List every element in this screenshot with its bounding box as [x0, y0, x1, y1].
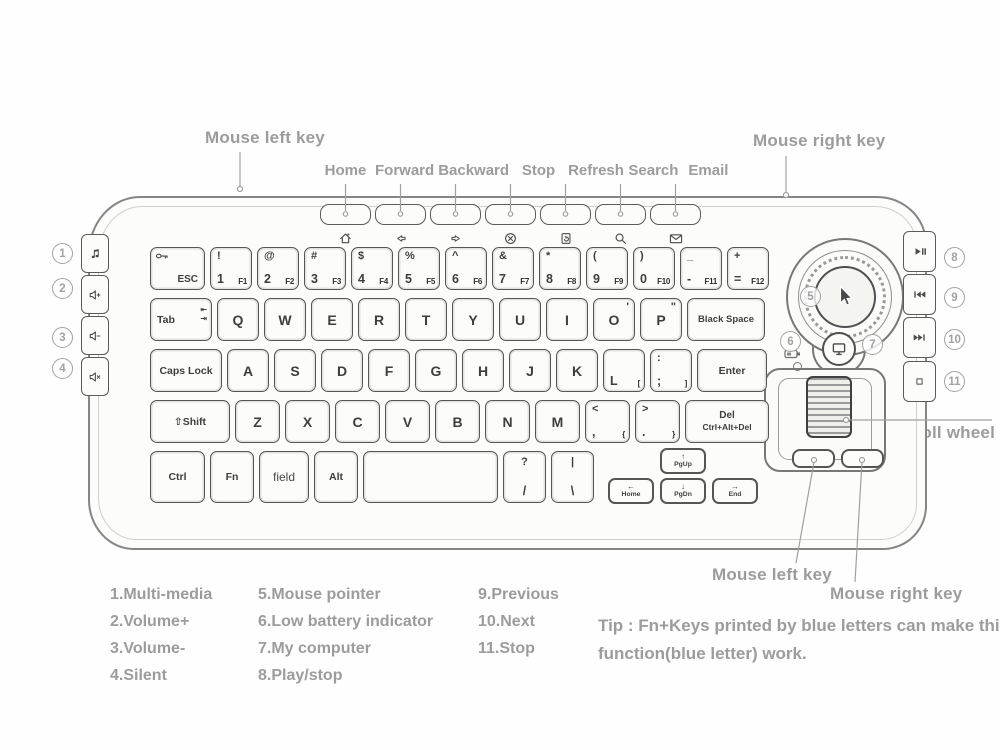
arrow-right-icon: →: [731, 483, 739, 491]
callout-number-5: 5: [800, 286, 821, 307]
key-equals[interactable]: +=F12: [727, 247, 769, 290]
media-key-label-backward: Backward: [438, 162, 509, 179]
key-esc[interactable]: ESC: [150, 247, 205, 290]
key-d[interactable]: D: [321, 349, 363, 392]
key-a[interactable]: A: [227, 349, 269, 392]
key-del[interactable]: DelCtrl+Alt+Del: [685, 400, 769, 443]
key-pgup[interactable]: ↑ PgUp: [660, 448, 706, 474]
media-key-label-search: Search: [628, 162, 679, 179]
key-t[interactable]: T: [405, 298, 447, 341]
key-9[interactable]: (9F9: [586, 247, 628, 290]
key-shift[interactable]: ⇧Shift: [150, 400, 230, 443]
key-home[interactable]: ← Home: [608, 478, 654, 504]
key-f[interactable]: F: [368, 349, 410, 392]
key-enter[interactable]: Enter: [697, 349, 767, 392]
key-home-label: Home: [622, 492, 641, 499]
key-black-space[interactable]: Black Space: [687, 298, 765, 341]
key-ctrl[interactable]: Ctrl: [150, 451, 205, 503]
stop-circle-icon: [503, 229, 518, 247]
side-button-volume-up[interactable]: [81, 275, 109, 314]
media-key-search[interactable]: [595, 204, 646, 225]
key-z[interactable]: Z: [235, 400, 280, 443]
key-u[interactable]: U: [499, 298, 541, 341]
key-w[interactable]: W: [264, 298, 306, 341]
email-icon: [668, 229, 684, 247]
arrow-right-icon: [448, 229, 464, 247]
callout-mouse-right-key-bottom: Mouse right key: [830, 584, 962, 604]
media-cell-email: [650, 204, 701, 247]
arrow-nav-cluster: ↑ PgUp ← Home ↓ PgDn → End: [608, 448, 760, 504]
key-end-label: End: [729, 492, 742, 499]
callout-number-6: 6: [780, 331, 801, 352]
key-h[interactable]: H: [462, 349, 504, 392]
key-s[interactable]: S: [274, 349, 316, 392]
side-button-previous-track[interactable]: [903, 274, 936, 315]
callout-mouse-right-key-top: Mouse right key: [753, 131, 885, 151]
next-track-icon: [911, 331, 928, 344]
key-y[interactable]: Y: [452, 298, 494, 341]
legend-item: 1.Multi-media: [110, 581, 212, 608]
key-5[interactable]: %5F5: [398, 247, 440, 290]
key-x[interactable]: X: [285, 400, 330, 443]
media-cell-home: [320, 204, 371, 247]
trackball[interactable]: [814, 266, 876, 328]
media-key-label-refresh: Refresh: [568, 162, 624, 179]
key-semicolon[interactable]: :;]: [650, 349, 692, 392]
key-b[interactable]: B: [435, 400, 480, 443]
legend-item: 9.Previous: [478, 581, 559, 608]
legend-item: 11.Stop: [478, 635, 559, 662]
key-q[interactable]: Q: [217, 298, 259, 341]
play-pause-icon: [912, 245, 928, 258]
legend-column-1: 1.Multi-media2.Volume+3.Volume-4.Silent: [110, 581, 212, 689]
key-fn[interactable]: Fn: [210, 451, 254, 503]
key-n[interactable]: N: [485, 400, 530, 443]
arrow-left-icon: [393, 229, 409, 247]
key-minus[interactable]: _-F11: [680, 247, 722, 290]
media-key-refresh[interactable]: [540, 204, 591, 225]
media-key-strip: [320, 204, 701, 247]
side-button-stop-square[interactable]: [903, 361, 936, 402]
side-button-mute[interactable]: [81, 357, 109, 396]
media-cell-forward: [375, 204, 426, 247]
key-v[interactable]: V: [385, 400, 430, 443]
key-caps-lock[interactable]: Caps Lock: [150, 349, 222, 392]
media-key-email[interactable]: [650, 204, 701, 225]
battery-led-light: [793, 362, 802, 371]
key-row-1: ESC!1F1@2F2#3F3$4F4%5F5^6F6&7F7*8F8(9F9)…: [150, 247, 769, 290]
media-key-label-stop: Stop: [513, 162, 564, 179]
media-cell-backward: [430, 204, 481, 247]
callout-number-11: 11: [944, 371, 965, 392]
home-icon: [338, 229, 353, 247]
key-field[interactable]: field: [259, 451, 309, 503]
my-computer-button[interactable]: [822, 332, 856, 366]
media-key-home[interactable]: [320, 204, 371, 225]
volume-down-icon: [87, 329, 103, 343]
key-slash[interactable]: ?/: [503, 451, 546, 503]
key-e[interactable]: E: [311, 298, 353, 341]
mouse-pointer-icon: [834, 285, 856, 309]
media-key-label-forward: Forward: [375, 162, 434, 179]
key-pgdn-label: PgDn: [674, 492, 692, 499]
mute-icon: [87, 370, 103, 384]
callout-number-9: 9: [944, 287, 965, 308]
key-c[interactable]: C: [335, 400, 380, 443]
callout-number-8: 8: [944, 247, 965, 268]
key-0[interactable]: )0F10: [633, 247, 675, 290]
previous-track-icon: [911, 288, 928, 301]
callout-number-4: 4: [52, 358, 73, 379]
key-3[interactable]: #3F3: [304, 247, 346, 290]
key-del-label: DelCtrl+Alt+Del: [686, 401, 768, 442]
legend-column-2: 5.Mouse pointer6.Low battery indicator7.…: [258, 581, 433, 689]
media-key-labels: HomeForwardBackwardStopRefreshSearchEmai…: [320, 162, 734, 179]
callout-number-7: 7: [862, 334, 883, 355]
key-space[interactable]: [363, 451, 498, 503]
key-pgdn[interactable]: ↓ PgDn: [660, 478, 706, 504]
callout-number-1: 1: [52, 243, 73, 264]
callout-number-2: 2: [52, 278, 73, 299]
keyboard-manual-diagram: Mouse left key Mouse right key HomeForwa…: [0, 0, 1000, 750]
key-m[interactable]: M: [535, 400, 580, 443]
legend-column-3: 9.Previous10.Next11.Stop: [478, 581, 559, 662]
legend-item: 6.Low battery indicator: [258, 608, 433, 635]
legend-item: 3.Volume-: [110, 635, 212, 662]
key-backslash[interactable]: |\: [551, 451, 594, 503]
key-comma[interactable]: <,{: [585, 400, 630, 443]
mouse-left-button[interactable]: [792, 449, 835, 468]
media-key-forward[interactable]: [375, 204, 426, 225]
key-period[interactable]: >.}: [635, 400, 680, 443]
key-alt[interactable]: Alt: [314, 451, 358, 503]
key-l[interactable]: L[: [603, 349, 645, 392]
arrow-left-icon: ←: [627, 483, 635, 491]
key-g[interactable]: G: [415, 349, 457, 392]
media-cell-refresh: [540, 204, 591, 247]
refresh-page-icon: [559, 229, 573, 247]
legend-item: 4.Silent: [110, 662, 212, 689]
legend-item: 5.Mouse pointer: [258, 581, 433, 608]
arrow-up-icon: ↑: [681, 453, 685, 461]
key-6[interactable]: ^6F6: [445, 247, 487, 290]
key-4[interactable]: $4F4: [351, 247, 393, 290]
mouse-right-button[interactable]: [841, 449, 884, 468]
stop-square-icon: [913, 375, 926, 388]
media-cell-stop: [485, 204, 536, 247]
media-key-stop[interactable]: [485, 204, 536, 225]
key-8[interactable]: *8F8: [539, 247, 581, 290]
key-2[interactable]: @2F2: [257, 247, 299, 290]
legend-item: 2.Volume+: [110, 608, 212, 635]
key-row-2: ⇤⇥TabQWERTYUIO'P"Black Space: [150, 298, 765, 341]
legend-item: 7.My computer: [258, 635, 433, 662]
key-tab[interactable]: ⇤⇥Tab: [150, 298, 212, 341]
key-p[interactable]: P": [640, 298, 682, 341]
media-key-label-home: Home: [320, 162, 371, 179]
key-row-4: ⇧ShiftZXCVBNM<,{>.}DelCtrl+Alt+Del: [150, 400, 769, 443]
my-computer-icon: [830, 340, 848, 358]
key-o[interactable]: O': [593, 298, 635, 341]
media-key-label-email: Email: [683, 162, 734, 179]
key-r[interactable]: R: [358, 298, 400, 341]
arrow-down-icon: ↓: [681, 483, 685, 491]
legend-item: 10.Next: [478, 608, 559, 635]
legend-item: 8.Play/stop: [258, 662, 433, 689]
key-i[interactable]: I: [546, 298, 588, 341]
key-7[interactable]: &7F7: [492, 247, 534, 290]
key-k[interactable]: K: [556, 349, 598, 392]
key-j[interactable]: J: [509, 349, 551, 392]
callout-number-3: 3: [52, 327, 73, 348]
scroll-wheel[interactable]: [806, 376, 852, 438]
side-button-music-note[interactable]: [81, 234, 109, 273]
callout-mouse-left-key-top: Mouse left key: [205, 128, 325, 148]
media-key-backward[interactable]: [430, 204, 481, 225]
callout-number-10: 10: [944, 329, 965, 350]
side-button-play-pause[interactable]: [903, 231, 936, 272]
volume-up-icon: [87, 288, 103, 302]
key-end[interactable]: → End: [712, 478, 758, 504]
key-pgup-label: PgUp: [674, 462, 692, 469]
side-button-volume-down[interactable]: [81, 316, 109, 355]
media-cell-search: [595, 204, 646, 247]
key-row-3: Caps LockASDFGHJKL[:;]Enter: [150, 349, 767, 392]
side-button-next-track[interactable]: [903, 317, 936, 358]
music-note-icon: [89, 247, 102, 261]
callout-mouse-left-key-bottom: Mouse left key: [712, 565, 832, 585]
key-1[interactable]: !1F1: [210, 247, 252, 290]
search-icon: [613, 229, 628, 247]
key-row-5: CtrlFnfieldAlt?/|\: [150, 451, 594, 503]
tip-text: Tip : Fn+Keys printed by blue letters ca…: [598, 612, 1000, 668]
